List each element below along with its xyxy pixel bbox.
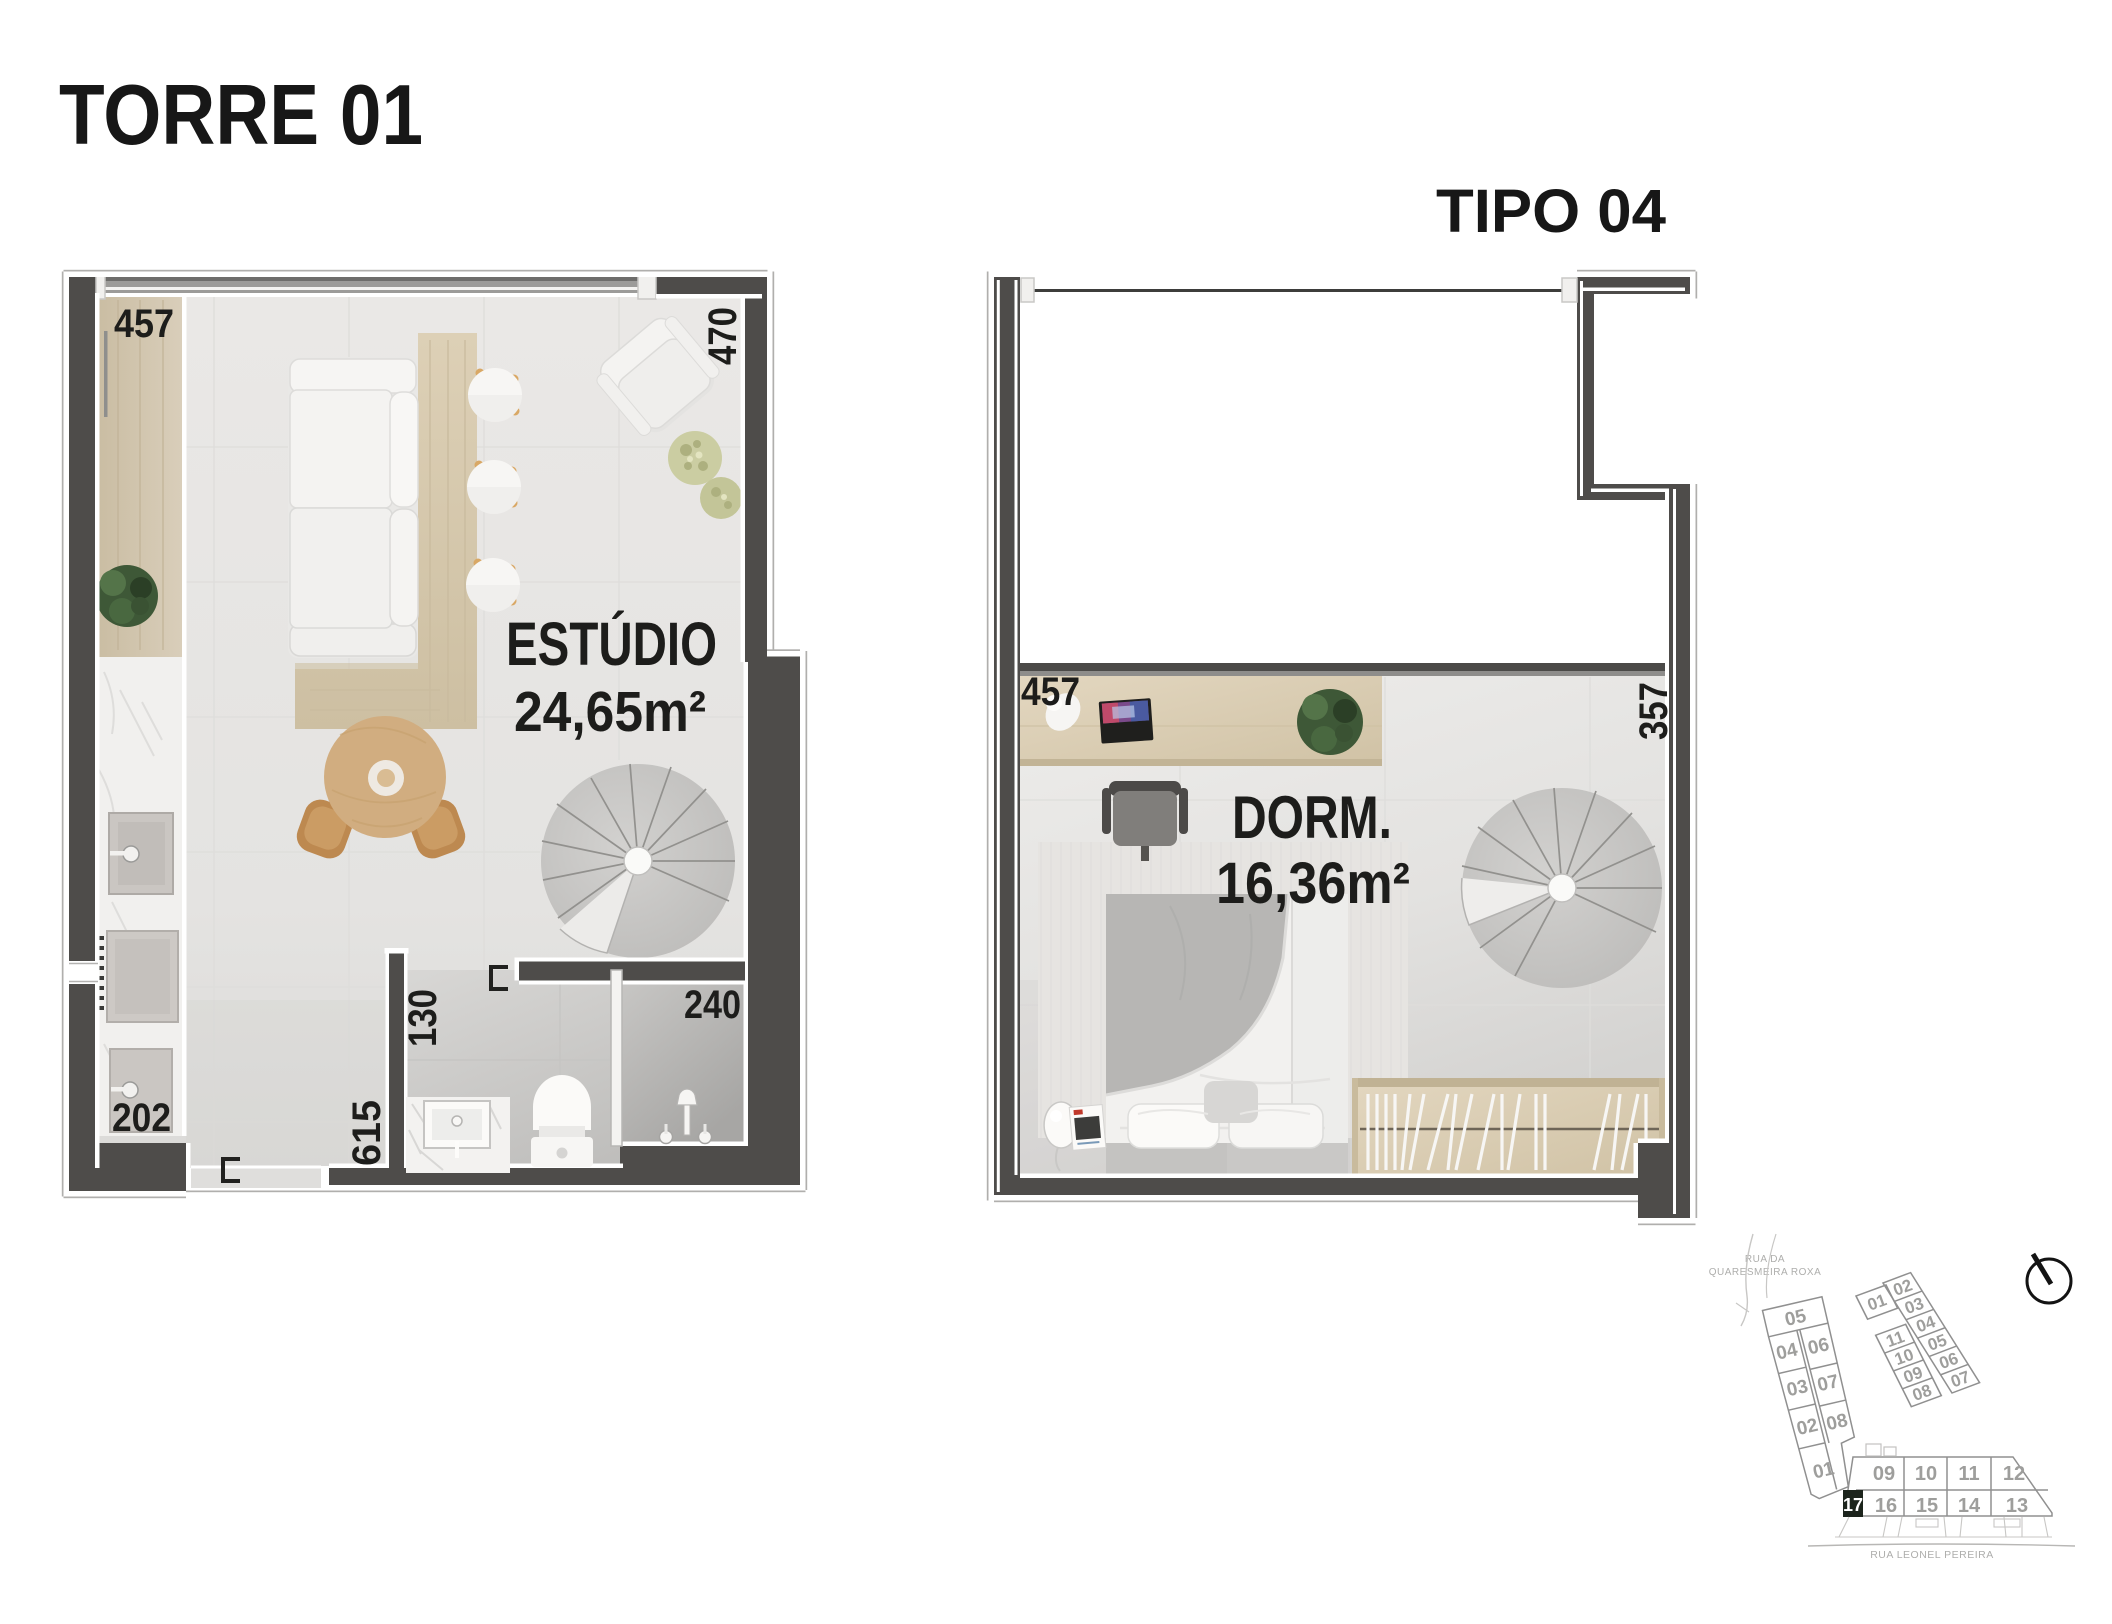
- svg-text:615: 615: [345, 1100, 389, 1166]
- svg-text:16: 16: [1875, 1495, 1897, 1517]
- svg-text:24,65m²: 24,65m²: [514, 680, 706, 744]
- svg-text:07: 07: [1815, 1371, 1840, 1396]
- svg-text:12: 12: [2003, 1463, 2025, 1485]
- svg-text:15: 15: [1916, 1495, 1938, 1517]
- svg-text:RUA LEONEL PEREIRA: RUA LEONEL PEREIRA: [1870, 1549, 1994, 1561]
- svg-text:240: 240: [684, 983, 741, 1027]
- svg-text:457: 457: [114, 302, 174, 346]
- svg-text:470: 470: [701, 307, 745, 365]
- svg-text:TIPO 04: TIPO 04: [1436, 177, 1666, 245]
- svg-text:09: 09: [1873, 1463, 1895, 1485]
- svg-text:13: 13: [2006, 1495, 2028, 1517]
- svg-text:202: 202: [112, 1096, 171, 1140]
- svg-text:02: 02: [1795, 1415, 1820, 1440]
- svg-text:DORM.: DORM.: [1232, 784, 1392, 851]
- svg-text:10: 10: [1915, 1463, 1937, 1485]
- svg-text:130: 130: [401, 989, 445, 1047]
- svg-text:17: 17: [1843, 1495, 1863, 1515]
- svg-text:357: 357: [1632, 682, 1676, 740]
- svg-text:457: 457: [1021, 670, 1080, 714]
- svg-text:11: 11: [1958, 1463, 1979, 1485]
- svg-text:08: 08: [1824, 1410, 1849, 1435]
- svg-text:05: 05: [1783, 1306, 1809, 1331]
- svg-text:RUA DA: RUA DA: [1745, 1254, 1785, 1265]
- svg-text:ESTÚDIO: ESTÚDIO: [506, 610, 717, 678]
- svg-text:01: 01: [1811, 1458, 1837, 1483]
- svg-text:14: 14: [1958, 1495, 1981, 1517]
- svg-text:01: 01: [1865, 1290, 1889, 1314]
- svg-text:QUARESMEIRA ROXA: QUARESMEIRA ROXA: [1709, 1267, 1821, 1278]
- svg-text:03: 03: [1785, 1376, 1810, 1401]
- svg-text:04: 04: [1774, 1339, 1800, 1364]
- svg-text:06: 06: [1806, 1334, 1831, 1359]
- svg-text:TORRE 01: TORRE 01: [59, 68, 423, 163]
- svg-text:16,36m²: 16,36m²: [1216, 851, 1410, 916]
